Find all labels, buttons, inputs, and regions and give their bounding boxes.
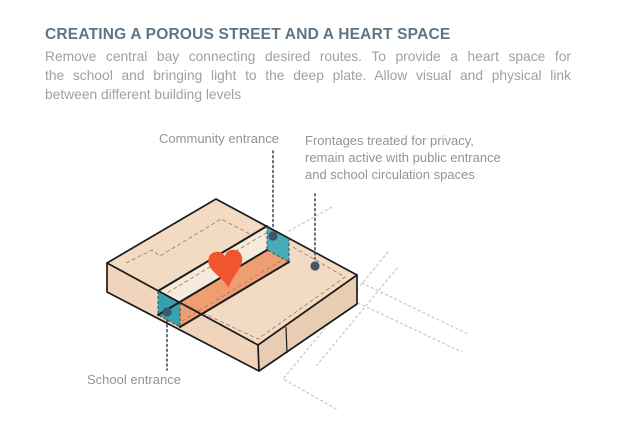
school-entrance-label: School entrance: [87, 371, 227, 388]
community-entrance-label: Community entrance: [148, 130, 279, 147]
community-entrance-dot: [268, 231, 277, 240]
isometric-building-diagram: [0, 0, 640, 435]
route-line: [362, 283, 468, 334]
frontage-entrance-dot: [310, 261, 319, 270]
slide-page: CREATING A POROUS STREET AND A HEART SPA…: [0, 0, 640, 435]
front-corner-edge: [258, 345, 259, 371]
route-line: [289, 207, 332, 231]
route-line: [358, 303, 462, 352]
frontages-label: Frontages treated for privacy, remain ac…: [305, 132, 517, 183]
school-entrance-dot: [162, 307, 171, 316]
